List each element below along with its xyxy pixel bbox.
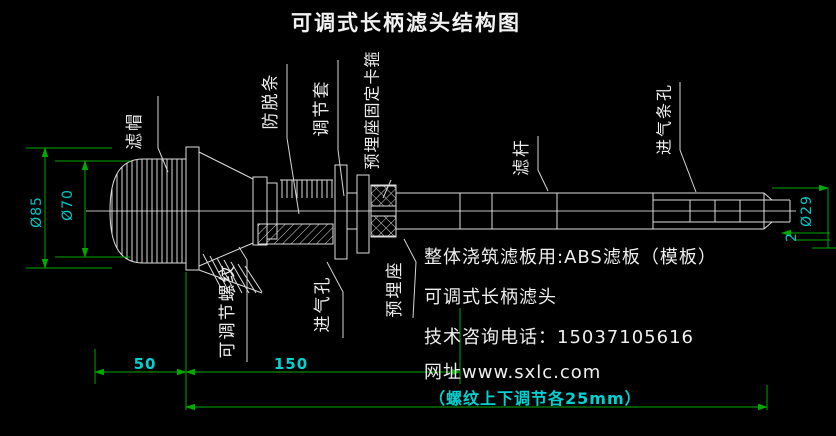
dim-text-adjust-length: 150: [274, 355, 308, 373]
structure-diagram: Ø85 Ø70 Ø29 2 50 150 （螺纹上下调节各25mm） 滤帽 防脱…: [0, 0, 836, 436]
leader-adjustable-thread: [239, 247, 247, 362]
dim-text-wall-thickness: 2: [784, 232, 800, 242]
part-labels: 滤帽 防脱条 调节套 预埋座固定卡箍 滤杆 进气条孔 可调节螺纹 进气孔 预埋座: [125, 50, 674, 358]
thread-upper: [280, 180, 333, 198]
page-title: 可调式长柄滤头结构图: [291, 11, 521, 35]
sleeve-plate-1: [335, 165, 347, 259]
label-adjustable-thread: 可调节螺纹: [218, 264, 238, 359]
label-filter-rod: 滤杆: [512, 138, 532, 176]
note-filter-plate: 整体浇筑滤板用:ABS滤板（模板）: [424, 247, 717, 268]
leader-air-slots: [680, 82, 696, 192]
cap-flange: [186, 147, 199, 270]
leader-filter-rod: [538, 136, 548, 191]
dim-text-cap-body-diameter: Ø70: [60, 189, 76, 221]
cad-drawing-canvas: Ø85 Ø70 Ø29 2 50 150 （螺纹上下调节各25mm） 滤帽 防脱…: [0, 0, 836, 436]
leader-embedded-seat: [404, 239, 416, 318]
cone-section: [199, 152, 253, 266]
dim-text-head-length: 50: [134, 355, 157, 373]
note-product-name: 可调式长柄滤头: [424, 287, 557, 308]
note-phone: 技术咨询电话：15037105616: [424, 327, 694, 348]
note-website: 网址www.sxlc.com: [424, 362, 601, 383]
label-adjusting-sleeve: 调节套: [312, 80, 332, 137]
thread-adjustment-note: （螺纹上下调节各25mm）: [429, 389, 642, 408]
notes-block: 整体浇筑滤板用:ABS滤板（模板） 可调式长柄滤头 技术咨询电话：1503710…: [424, 247, 717, 383]
filter-head-geometry: [86, 147, 796, 293]
label-air-inlet-hole: 进气孔: [313, 276, 333, 333]
label-air-inlet-slot-holes: 进气条孔: [655, 83, 674, 155]
label-embedded-seat-fixing-clamp: 预埋座固定卡箍: [363, 50, 382, 169]
label-embedded-seat: 预埋座: [385, 261, 405, 318]
filter-cap-dome: [110, 159, 186, 263]
leader-adjusting-sleeve: [338, 60, 344, 196]
clamp-hatch-bottom: [371, 216, 396, 236]
thread-lower: [258, 224, 333, 244]
dim-text-rod-end-diameter: Ø29: [799, 195, 815, 227]
label-anti-release-strip: 防脱条: [261, 73, 281, 130]
label-filter-cap: 滤帽: [125, 112, 145, 150]
sleeve-plate-2: [357, 175, 369, 253]
dim-text-cap-outer-diameter: Ø85: [29, 196, 45, 228]
